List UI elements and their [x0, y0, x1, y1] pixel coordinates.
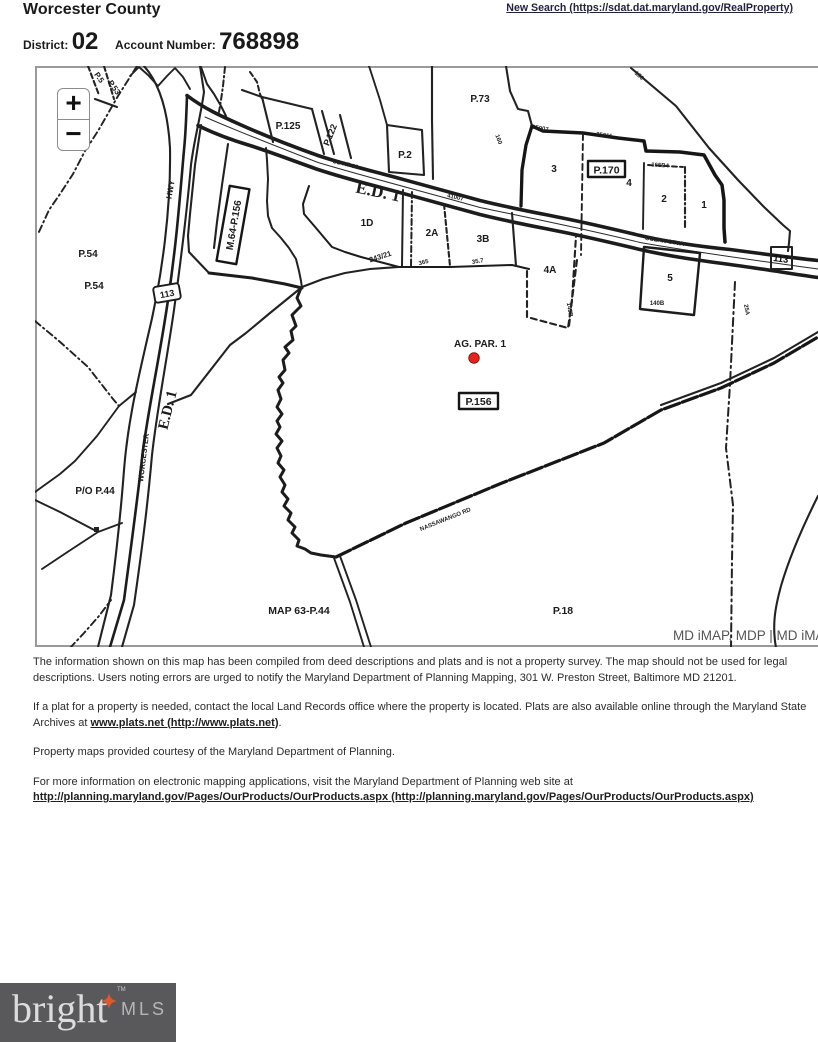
svg-text:150: 150 [633, 71, 645, 83]
svg-text:P.54: P.54 [84, 281, 104, 292]
svg-text:1D: 1D [361, 218, 374, 229]
svg-text:4A: 4A [544, 265, 557, 276]
svg-text:113: 113 [772, 253, 789, 266]
svg-text:E.D. 1: E.D. 1 [354, 178, 402, 206]
svg-text:25A: 25A [742, 304, 750, 317]
svg-text:E.D. 1: E.D. 1 [156, 389, 181, 431]
svg-text:P.2: P.2 [398, 150, 412, 161]
svg-text:165B4: 165B4 [651, 162, 670, 169]
svg-text:MAP 63-P.44: MAP 63-P.44 [268, 605, 330, 617]
svg-text:1: 1 [701, 200, 707, 211]
svg-text:US RT 50: US RT 50 [332, 159, 360, 171]
svg-text:35.7: 35.7 [472, 258, 485, 266]
svg-text:P.156: P.156 [465, 396, 491, 408]
svg-text:P.18: P.18 [553, 605, 573, 617]
svg-text:P.73: P.73 [470, 94, 490, 105]
svg-text:3B: 3B [477, 234, 490, 245]
svg-text:P.54: P.54 [78, 249, 98, 260]
svg-text:NASSAWANGO RD: NASSAWANGO RD [419, 507, 472, 533]
svg-text:AG. PAR. 1: AG. PAR. 1 [454, 339, 506, 350]
svg-text:140B: 140B [650, 301, 665, 307]
svg-text:365: 365 [418, 259, 430, 267]
svg-text:P/O P.44: P/O P.44 [75, 486, 115, 497]
svg-text:2: 2 [661, 194, 667, 205]
svg-text:WORCESTER: WORCESTER [136, 432, 151, 482]
svg-text:4: 4 [626, 178, 632, 189]
svg-text:P.122: P.122 [321, 123, 339, 147]
svg-text:145B: 145B [565, 302, 574, 318]
svg-text:MD iMAP, MDP | MD iMA: MD iMAP, MDP | MD iMA [673, 628, 818, 643]
svg-text:2A: 2A [426, 228, 439, 239]
svg-text:35011: 35011 [596, 132, 614, 140]
svg-text:15007: 15007 [531, 125, 549, 134]
svg-text:3: 3 [551, 164, 557, 175]
svg-text:P.170: P.170 [593, 165, 619, 177]
svg-text:160: 160 [493, 134, 502, 146]
svg-text:5: 5 [667, 273, 673, 284]
svg-text:P.125: P.125 [276, 121, 301, 132]
svg-text:HWY: HWY [164, 179, 176, 200]
